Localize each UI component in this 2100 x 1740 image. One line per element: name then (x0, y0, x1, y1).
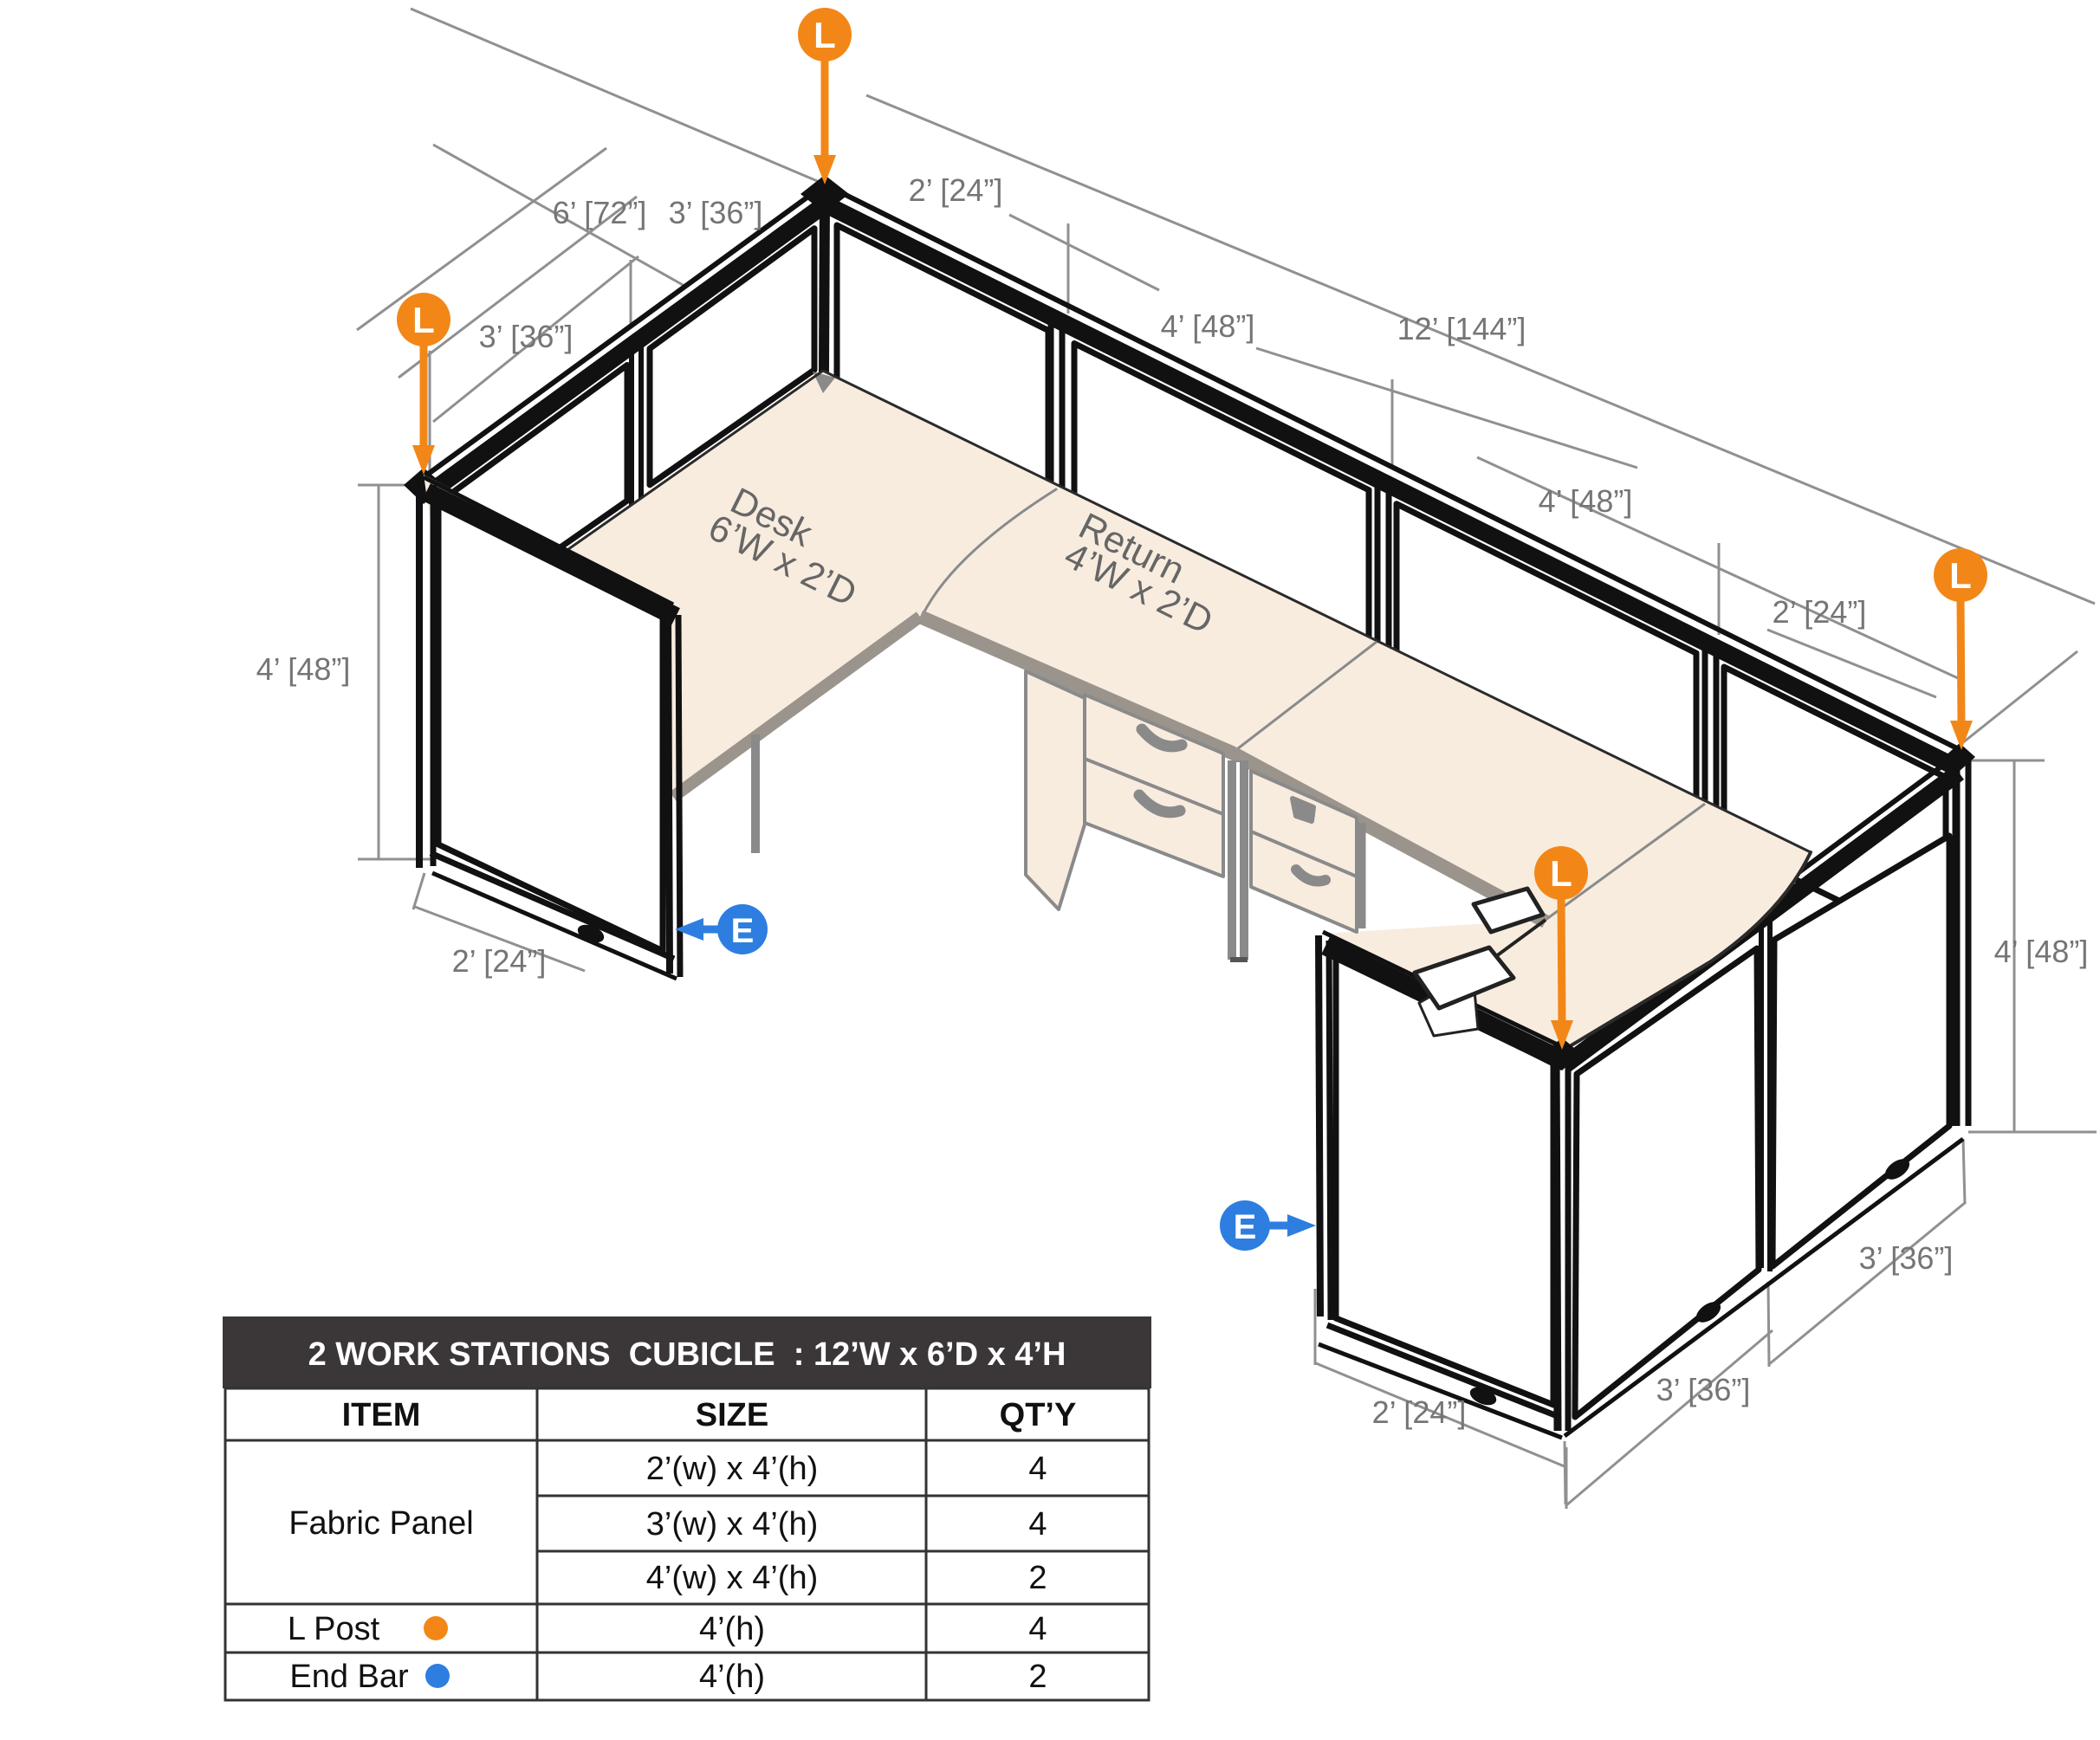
svg-text:L: L (1949, 555, 1972, 596)
svg-text:E: E (1234, 1208, 1257, 1246)
svg-text:3’ [36”]: 3’ [36”] (479, 319, 574, 354)
svg-text:4: 4 (1028, 1611, 1047, 1647)
svg-text:L: L (813, 15, 836, 55)
svg-text:4’ [48”]: 4’ [48”] (1994, 934, 2089, 969)
svg-text:2’ [24”]: 2’ [24”] (1773, 594, 1867, 630)
svg-text:4: 4 (1028, 1451, 1047, 1487)
svg-text:SIZE: SIZE (696, 1397, 768, 1433)
svg-text:End Bar: End Bar (289, 1659, 409, 1695)
svg-text:2’ [24”]: 2’ [24”] (1372, 1394, 1467, 1430)
svg-text:3’ [36”]: 3’ [36”] (1859, 1240, 1954, 1276)
svg-text:2’ [24”]: 2’ [24”] (909, 172, 1003, 208)
svg-text:QT’Y: QT’Y (1000, 1397, 1077, 1433)
svg-text:6’ [72”]: 6’ [72”] (553, 195, 647, 230)
svg-text:4’(w) x 4’(h): 4’(w) x 4’(h) (646, 1560, 818, 1596)
svg-text:2’(w) x 4’(h): 2’(w) x 4’(h) (646, 1451, 818, 1487)
svg-text:2: 2 (1028, 1659, 1047, 1695)
svg-text:4’(h): 4’(h) (699, 1659, 765, 1695)
svg-text:4’ [48”]: 4’ [48”] (1539, 483, 1633, 519)
svg-text:4’(h): 4’(h) (699, 1611, 765, 1647)
svg-text:E: E (731, 912, 755, 950)
svg-text:3’ [36”]: 3’ [36”] (1656, 1372, 1751, 1407)
svg-text:L: L (1550, 853, 1572, 894)
svg-text:Fabric Panel: Fabric Panel (288, 1505, 473, 1542)
svg-text:12’ [144”]: 12’ [144”] (1397, 311, 1526, 346)
svg-text:L: L (412, 300, 435, 340)
svg-text:ITEM: ITEM (342, 1397, 421, 1433)
svg-text:4: 4 (1028, 1506, 1047, 1543)
svg-text:2’ [24”]: 2’ [24”] (452, 943, 547, 979)
svg-text:2: 2 (1028, 1560, 1047, 1596)
svg-text:L Post: L Post (288, 1611, 380, 1647)
svg-text:3’(w) x 4’(h): 3’(w) x 4’(h) (646, 1506, 818, 1543)
svg-text:3’ [36”]: 3’ [36”] (669, 195, 763, 230)
svg-text:2 WORK STATIONS CUBICLE : 12: 2 WORK STATIONS CUBICLE : 12’W x 6’D x 4… (308, 1336, 1066, 1373)
svg-text:4’ [48”]: 4’ [48”] (256, 651, 351, 687)
svg-text:4’ [48”]: 4’ [48”] (1161, 308, 1255, 344)
